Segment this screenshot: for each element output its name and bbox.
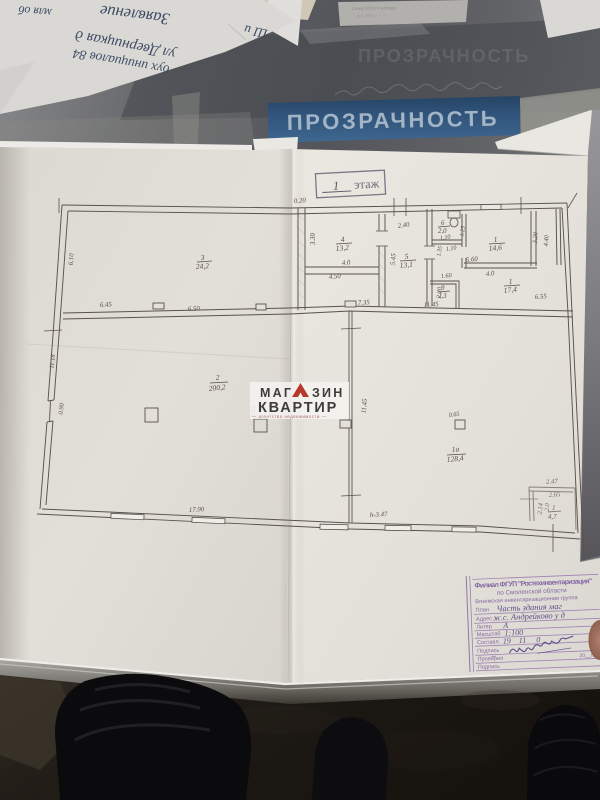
svg-text:17.90: 17.90 <box>189 506 205 514</box>
svg-text:ПРОЗРАЧНОСТЬ: ПРОЗРАЧНОСТЬ <box>358 46 530 66</box>
svg-text:4.0: 4.0 <box>342 259 352 267</box>
svg-text:6.10: 6.10 <box>68 253 76 266</box>
svg-text:2.0: 2.0 <box>544 502 552 511</box>
svg-text:ПРОЗРАЧНОСТЬ: ПРОЗРАЧНОСТЬ <box>287 106 500 135</box>
svg-text:6.50: 6.50 <box>188 305 201 313</box>
svg-text:ул « 2005 — 1 »: ул « 2005 — 1 » <box>356 12 386 18</box>
svg-text:0.65: 0.65 <box>448 411 460 419</box>
svg-text:3.30: 3.30 <box>310 233 317 246</box>
svg-text:24,2: 24,2 <box>196 261 210 271</box>
svg-text:1: 1 <box>552 504 556 512</box>
svg-text:1.60: 1.60 <box>441 272 453 280</box>
svg-text:1a: 1a <box>451 444 460 454</box>
svg-text:Проверил: Проверил <box>477 656 503 663</box>
svg-text:200,2: 200,2 <box>208 382 226 393</box>
svg-text:Подпись: Подпись <box>477 648 499 655</box>
svg-text:0.90: 0.90 <box>58 402 66 415</box>
svg-text:Масштаб: Масштаб <box>476 631 500 638</box>
svg-text:4.40: 4.40 <box>543 234 551 247</box>
svg-text:Составл.: Составл. <box>477 639 501 646</box>
svg-text:6.55: 6.55 <box>535 293 548 301</box>
svg-text:0.20: 0.20 <box>294 197 307 205</box>
svg-text:ЗИН: ЗИН <box>312 386 344 400</box>
svg-text:4.50: 4.50 <box>329 273 342 281</box>
svg-text:6: 6 <box>441 220 445 227</box>
svg-text:3.20: 3.20 <box>532 231 540 245</box>
svg-text:11.45: 11.45 <box>424 301 440 309</box>
svg-text:План: План <box>475 607 489 614</box>
svg-text:11.45: 11.45 <box>361 398 369 414</box>
svg-text:Адрес: Адрес <box>476 616 492 623</box>
svg-text:5.60: 5.60 <box>466 256 479 264</box>
svg-text:Подпись: Подпись <box>478 664 500 671</box>
svg-text:МАГ: МАГ <box>260 386 293 400</box>
svg-text:этаж: этаж <box>354 176 380 191</box>
svg-text:1: 1 <box>333 179 340 193</box>
svg-text:2.20: 2.20 <box>436 286 444 299</box>
svg-text:Литер: Литер <box>476 624 492 631</box>
svg-text:4,7: 4,7 <box>548 513 557 521</box>
svg-text:7.35: 7.35 <box>358 299 371 307</box>
svg-text:— агентство недвижимости —: — агентство недвижимости — <box>252 414 327 419</box>
svg-text:19 11 0: 19 11 0 <box>503 635 541 645</box>
svg-text:2.65: 2.65 <box>549 491 562 499</box>
svg-text:2.47: 2.47 <box>546 478 559 486</box>
svg-text:стика Обсего напада: стика Обсего напада <box>352 5 396 11</box>
svg-text:20__г.: 20__г. <box>579 653 593 660</box>
svg-text:5.45: 5.45 <box>390 253 398 266</box>
svg-text:h-3.47: h-3.47 <box>370 511 388 519</box>
svg-text:4.0: 4.0 <box>486 270 496 278</box>
svg-text:6.45: 6.45 <box>100 301 113 309</box>
